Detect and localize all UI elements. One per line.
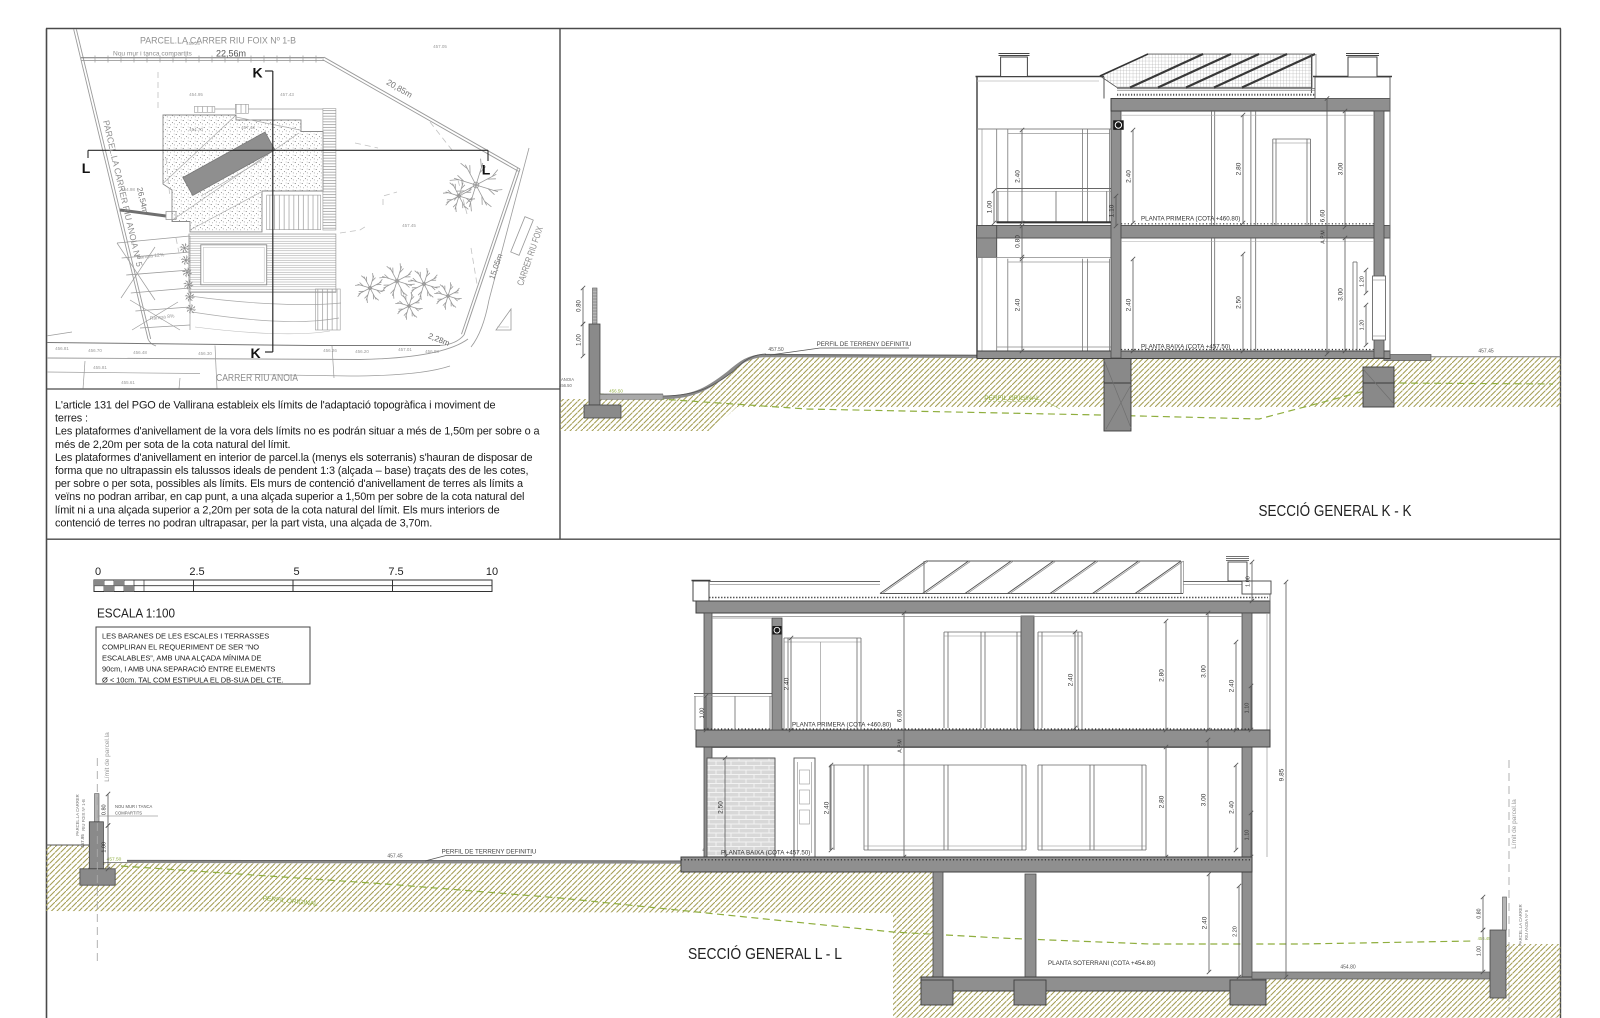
svg-text:PERFIL DE TERRENY DEFINITIU: PERFIL DE TERRENY DEFINITIU [817,341,912,348]
svg-text:457.45: 457.45 [1478,349,1494,355]
svg-text:2.80: 2.80 [1159,795,1166,808]
svg-text:K: K [250,345,260,361]
svg-text:2.5: 2.5 [189,566,204,578]
svg-text:A.P.M: A.P.M [898,739,904,752]
svg-text:per sobre o per sota, possible: per sobre o per sota, possibles als lími… [55,478,524,490]
svg-text:contenció de terres no podran: contenció de terres no podran ultrapasar… [55,517,432,529]
svg-text:1.00: 1.00 [577,334,583,346]
svg-text:2.80: 2.80 [1159,669,1166,682]
svg-text:1.00: 1.00 [1477,946,1483,956]
svg-text:7.5: 7.5 [388,566,403,578]
svg-text:Nou mur i tanca compartits: Nou mur i tanca compartits [113,51,192,58]
svg-text:PLANTA PRIMERA (COTA +460.80): PLANTA PRIMERA (COTA +460.80) [792,722,891,729]
svg-text:L'article 131 del PGO de Valli: L'article 131 del PGO de Vallirana estab… [55,400,495,412]
svg-text:K: K [252,65,262,81]
svg-text:2.50: 2.50 [1236,296,1243,309]
svg-text:2.20: 2.20 [1233,926,1239,937]
svg-text:3.00: 3.00 [1201,665,1208,678]
svg-text:Límit de parcel.la: Límit de parcel.la [104,732,111,782]
svg-text:0.80: 0.80 [102,804,108,815]
svg-text:forma que no ultrapassin els t: forma que no ultrapassin els talussos id… [55,465,529,477]
svg-text:454.98: 454.98 [121,187,135,192]
svg-text:L: L [82,160,91,176]
svg-text:1.10: 1.10 [1245,830,1251,841]
svg-text:límit ni a una alçada superior: límit ni a una alçada superior a 2,20m p… [55,504,500,516]
svg-text:ESCALA 1:100: ESCALA 1:100 [97,607,175,621]
svg-text:0.80: 0.80 [1477,908,1483,918]
svg-text:90cm, I AMB UNA SEPARACIÓ ENTR: 90cm, I AMB UNA SEPARACIÓ ENTRE ELEMENTS [102,665,275,674]
svg-text:1.10: 1.10 [1245,703,1251,714]
svg-text:ANOIA: ANOIA [561,377,574,382]
svg-text:RIU FOIX Nº 1-B: RIU FOIX Nº 1-B [81,799,86,831]
svg-text:L: L [482,162,491,178]
svg-text:2.40: 2.40 [824,801,831,814]
svg-text:454.70: 454.70 [189,127,203,132]
svg-text:457.45: 457.45 [402,223,416,228]
svg-text:456.20: 456.20 [355,349,369,354]
svg-text:PARCEL.LA CARRER: PARCEL.LA CARRER [1518,904,1523,945]
svg-text:6.60: 6.60 [897,709,904,722]
svg-text:6.60: 6.60 [1320,209,1327,222]
svg-text:CARRER RIU ANOIA: CARRER RIU ANOIA [216,373,298,384]
svg-text:1.20: 1.20 [1360,320,1366,331]
svg-text:0.80: 0.80 [1015,235,1022,248]
svg-text:456.81: 456.81 [55,346,69,351]
svg-text:A.P.M: A.P.M [1321,230,1327,243]
svg-text:PERFIL DE TERRENY DEFINITIU: PERFIL DE TERRENY DEFINITIU [442,849,537,856]
svg-text:456.70: 456.70 [88,348,102,353]
svg-text:457.01: 457.01 [398,347,412,352]
svg-text:9.85: 9.85 [1279,768,1286,781]
svg-text:2.40: 2.40 [1015,170,1022,183]
svg-text:2.40: 2.40 [1202,916,1209,929]
svg-text:2.40: 2.40 [1126,170,1133,183]
svg-text:SECCIÓ GENERAL L - L: SECCIÓ GENERAL L - L [688,946,842,963]
svg-text:2.50: 2.50 [718,801,725,814]
svg-text:457.43: 457.43 [241,125,255,130]
svg-text:PARCEL.LA CARRER RIU FOIX Nº 1: PARCEL.LA CARRER RIU FOIX Nº 1-B [140,36,296,47]
svg-text:456.25: 456.25 [186,41,200,46]
svg-text:Ø < 10cm. TAL COM ESTIPULA EL: Ø < 10cm. TAL COM ESTIPULA EL DB-SUA DEL… [102,676,284,685]
svg-text:ESCALABLES”, AMB UNA ALÇADA MÍ: ESCALABLES”, AMB UNA ALÇADA MÍNIMA DE [102,654,262,663]
svg-text:22,56m: 22,56m [216,49,246,59]
svg-text:2.40: 2.40 [1229,679,1236,692]
svg-text:PLANTA BAIXA (COTA +457.50): PLANTA BAIXA (COTA +457.50) [721,850,810,857]
svg-text:1.00: 1.00 [1246,576,1252,587]
svg-text:2.80: 2.80 [1236,162,1243,175]
svg-text:457.50: 457.50 [107,857,122,863]
svg-text:456.98: 456.98 [425,349,439,354]
svg-text:1.00: 1.00 [102,842,108,853]
svg-text:456.48: 456.48 [133,350,147,355]
svg-text:NOU MUR I TANCA: NOU MUR I TANCA [115,804,153,809]
svg-text:10: 10 [486,566,498,578]
svg-text:Les plataformes d'anivellament: Les plataformes d'anivellament en interi… [55,452,532,464]
svg-text:2.40: 2.40 [1229,801,1236,814]
svg-text:Límit de parcel.la: Límit de parcel.la [1511,799,1518,849]
svg-text:PERFIL ORIGINAL: PERFIL ORIGINAL [984,395,1040,402]
svg-text:455.81: 455.81 [93,365,107,370]
svg-text:2.40: 2.40 [1015,298,1022,311]
svg-text:456.50: 456.50 [559,383,572,388]
svg-text:1.00: 1.00 [700,708,706,719]
svg-text:3.00: 3.00 [1338,162,1345,175]
svg-text:PLANTA SOTERRANI (COTA +454.80: PLANTA SOTERRANI (COTA +454.80) [1048,960,1156,967]
svg-text:457.05: 457.05 [433,44,447,49]
svg-text:3.00: 3.00 [1201,793,1208,806]
svg-text:més de 2,20m per sota de la co: més de 2,20m per sota de la cota natural… [55,439,291,451]
svg-text:PLANTA BAIXA (COTA +457.50): PLANTA BAIXA (COTA +457.50) [1141,344,1230,351]
svg-text:0.80: 0.80 [577,300,583,312]
svg-text:SECCIÓ GENERAL K - K: SECCIÓ GENERAL K - K [1259,503,1413,520]
svg-text:1.10: 1.10 [1109,204,1116,217]
svg-text:COMPLIRAN EL REQUERIMENT DE SE: COMPLIRAN EL REQUERIMENT DE SER “NO [102,643,259,652]
svg-text:PLANTA PRIMERA (COTA +460.80): PLANTA PRIMERA (COTA +460.80) [1141,216,1240,223]
svg-text:3.00: 3.00 [1338,288,1345,301]
svg-text:PARCEL.LA CARRER: PARCEL.LA CARRER [75,794,80,835]
svg-text:2.40: 2.40 [1126,298,1133,311]
svg-text:454.95: 454.95 [189,92,203,97]
svg-text:457.95: 457.95 [80,834,85,848]
svg-text:457.45: 457.45 [387,854,403,860]
svg-text:457.43: 457.43 [280,92,294,97]
svg-text:LES BARANES DE LES ESCALES I T: LES BARANES DE LES ESCALES I TERRASSES [102,632,269,641]
svg-text:Les plataformes d'anivellament: Les plataformes d'anivellament de la vor… [55,426,540,438]
svg-text:veïns no podran arribar, en ca: veïns no podran arribar, en cap punt, a … [55,491,524,503]
svg-text:454.80: 454.80 [1340,965,1356,971]
svg-text:456.45: 456.45 [1478,936,1491,941]
svg-text:COMPARTITS: COMPARTITS [115,811,142,816]
svg-text:1.00: 1.00 [987,200,994,213]
svg-text:5: 5 [293,566,299,578]
svg-text:2.40: 2.40 [1068,673,1075,686]
svg-text:456.50: 456.50 [609,389,623,394]
svg-text:0: 0 [95,566,101,578]
svg-text:455.61: 455.61 [121,380,135,385]
svg-text:456.30: 456.30 [198,351,212,356]
svg-text:terres :: terres : [55,413,88,425]
svg-text:1.20: 1.20 [1360,276,1366,287]
svg-text:RIU ANOIA Nº 5: RIU ANOIA Nº 5 [1524,909,1529,940]
svg-text:2.40: 2.40 [784,677,791,690]
svg-text:456.26: 456.26 [323,348,337,353]
svg-text:457.50: 457.50 [768,347,784,353]
